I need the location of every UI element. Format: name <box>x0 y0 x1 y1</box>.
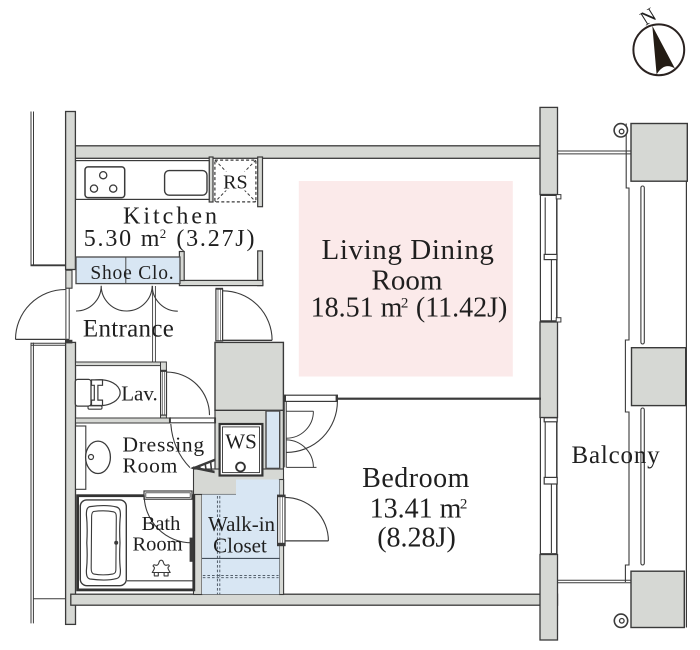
svg-text:Living Dining: Living Dining <box>322 234 495 266</box>
svg-text:Closet: Closet <box>213 534 267 558</box>
svg-text:WS: WS <box>225 430 257 454</box>
svg-text:Room: Room <box>132 534 182 556</box>
svg-text:(8.28J): (8.28J) <box>377 523 456 554</box>
svg-text:13.41 m2: 13.41 m2 <box>370 494 468 525</box>
svg-text:Room: Room <box>123 454 179 478</box>
svg-text:Bath: Bath <box>142 513 181 535</box>
svg-text:Balcony: Balcony <box>572 442 661 469</box>
svg-text:RS: RS <box>223 172 247 194</box>
svg-text:Walk-in: Walk-in <box>208 512 276 536</box>
svg-text:Shoe Clo.: Shoe Clo. <box>90 263 174 284</box>
svg-text:5.30 m2 (3.27J): 5.30 m2 (3.27J) <box>84 226 257 252</box>
svg-text:Entrance: Entrance <box>83 316 174 343</box>
svg-text:Lav.: Lav. <box>121 382 158 406</box>
svg-text:Bedroom: Bedroom <box>362 463 470 494</box>
svg-text:18.51 m2 (11.42J): 18.51 m2 (11.42J) <box>311 292 508 323</box>
